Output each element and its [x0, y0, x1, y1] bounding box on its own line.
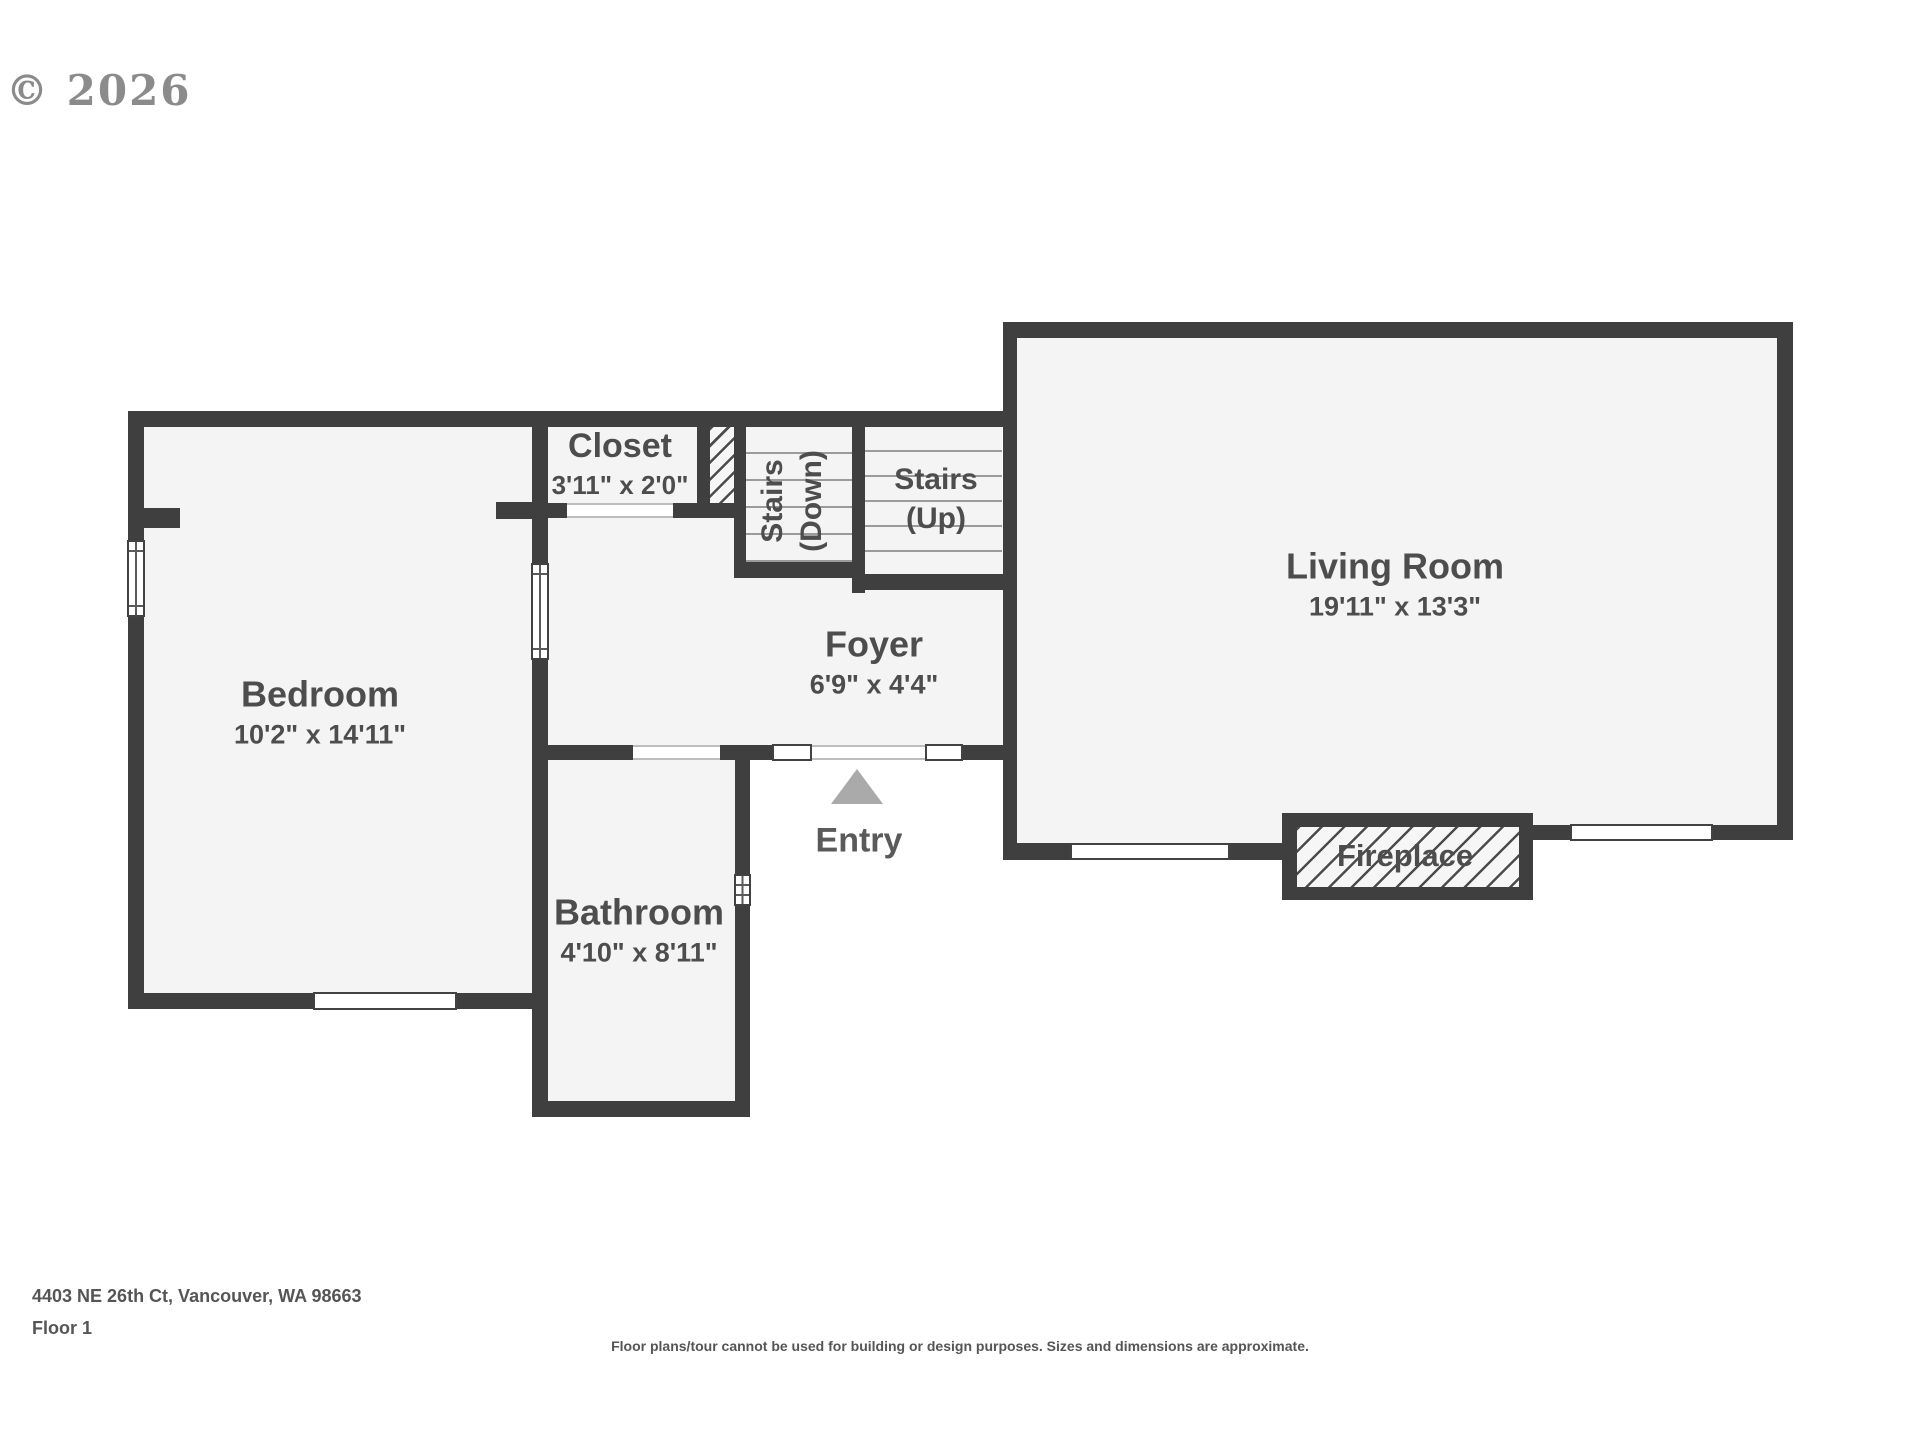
- wall-closet-right: [697, 411, 710, 518]
- wall-stub-left: [144, 508, 180, 528]
- bedroom-name: Bedroom: [234, 671, 406, 716]
- stairs-up-line2: (Up): [894, 499, 977, 538]
- foyer-dims: 6'9" x 4'4": [810, 666, 939, 702]
- stairs-up-line1: Stairs: [894, 460, 977, 499]
- living-window-left: [1070, 843, 1230, 860]
- living-window-right: [1570, 824, 1713, 841]
- copyright-watermark: © 2026: [6, 66, 192, 115]
- entry-arrow-icon: [831, 769, 883, 804]
- bathroom-door-opening: [633, 745, 720, 760]
- bedroom-label: Bedroom 10'2" x 14'11": [234, 671, 406, 752]
- wall-living-top: [1003, 322, 1793, 338]
- foyer-label: Foyer 6'9" x 4'4": [810, 621, 939, 702]
- floor-plan: © 2026 Bedroom 10'2" x 14'11": [0, 0, 1920, 1440]
- entry-label: Entry: [816, 822, 903, 861]
- bedroom-left-window: [127, 540, 145, 617]
- wall-bathroom-bottom: [532, 1101, 750, 1117]
- footer-disclaimer: Floor plans/tour cannot be used for buil…: [0, 1338, 1920, 1354]
- wall-stairs-down-bottom: [734, 562, 865, 578]
- stairs-down-line1: Stairs: [753, 450, 792, 552]
- bedroom-bottom-window: [313, 992, 457, 1010]
- wall-bedroom-left: [128, 411, 144, 1009]
- bedroom-foyer-opening: [531, 563, 549, 660]
- wall-living-left: [1003, 322, 1017, 860]
- bathroom-dims: 4'10" x 8'11": [554, 934, 724, 970]
- closet-name: Closet: [552, 425, 689, 468]
- wall-stairs-down-left: [734, 411, 746, 578]
- wall-bathroom-right: [735, 745, 750, 1117]
- living-room-label: Living Room 19'11" x 13'3": [1286, 543, 1504, 624]
- entry-sidelight-right: [925, 744, 963, 761]
- bedroom-dims: 10'2" x 14'11": [234, 716, 406, 752]
- chase-hatch: [710, 427, 734, 503]
- living-room-dims: 19'11" x 13'3": [1286, 588, 1504, 624]
- closet-door-opening: [567, 503, 673, 518]
- wall-living-right: [1777, 322, 1793, 840]
- wall-stairs-up-bottom: [852, 574, 1017, 590]
- bathroom-name: Bathroom: [554, 889, 724, 934]
- closet-label: Closet 3'11" x 2'0": [552, 425, 689, 503]
- footer-floor-label: Floor 1: [32, 1318, 92, 1339]
- stairs-down-line2: (Down): [792, 450, 831, 552]
- closet-dims: 3'11" x 2'0": [552, 468, 689, 503]
- fireplace-label: Fireplace: [1337, 838, 1473, 874]
- stairs-up-label: Stairs (Up): [894, 460, 977, 538]
- stairs-down-label: Stairs (Down): [753, 450, 831, 552]
- entry-door-opening: [812, 745, 925, 760]
- bathroom-label: Bathroom 4'10" x 8'11": [554, 889, 724, 970]
- bathroom-window: [734, 874, 751, 906]
- entry-sidelight-left: [772, 744, 812, 761]
- foyer-name: Foyer: [810, 621, 939, 666]
- footer-address: 4403 NE 26th Ct, Vancouver, WA 98663: [32, 1286, 362, 1307]
- living-room-name: Living Room: [1286, 543, 1504, 588]
- wall-stub-right: [496, 502, 532, 519]
